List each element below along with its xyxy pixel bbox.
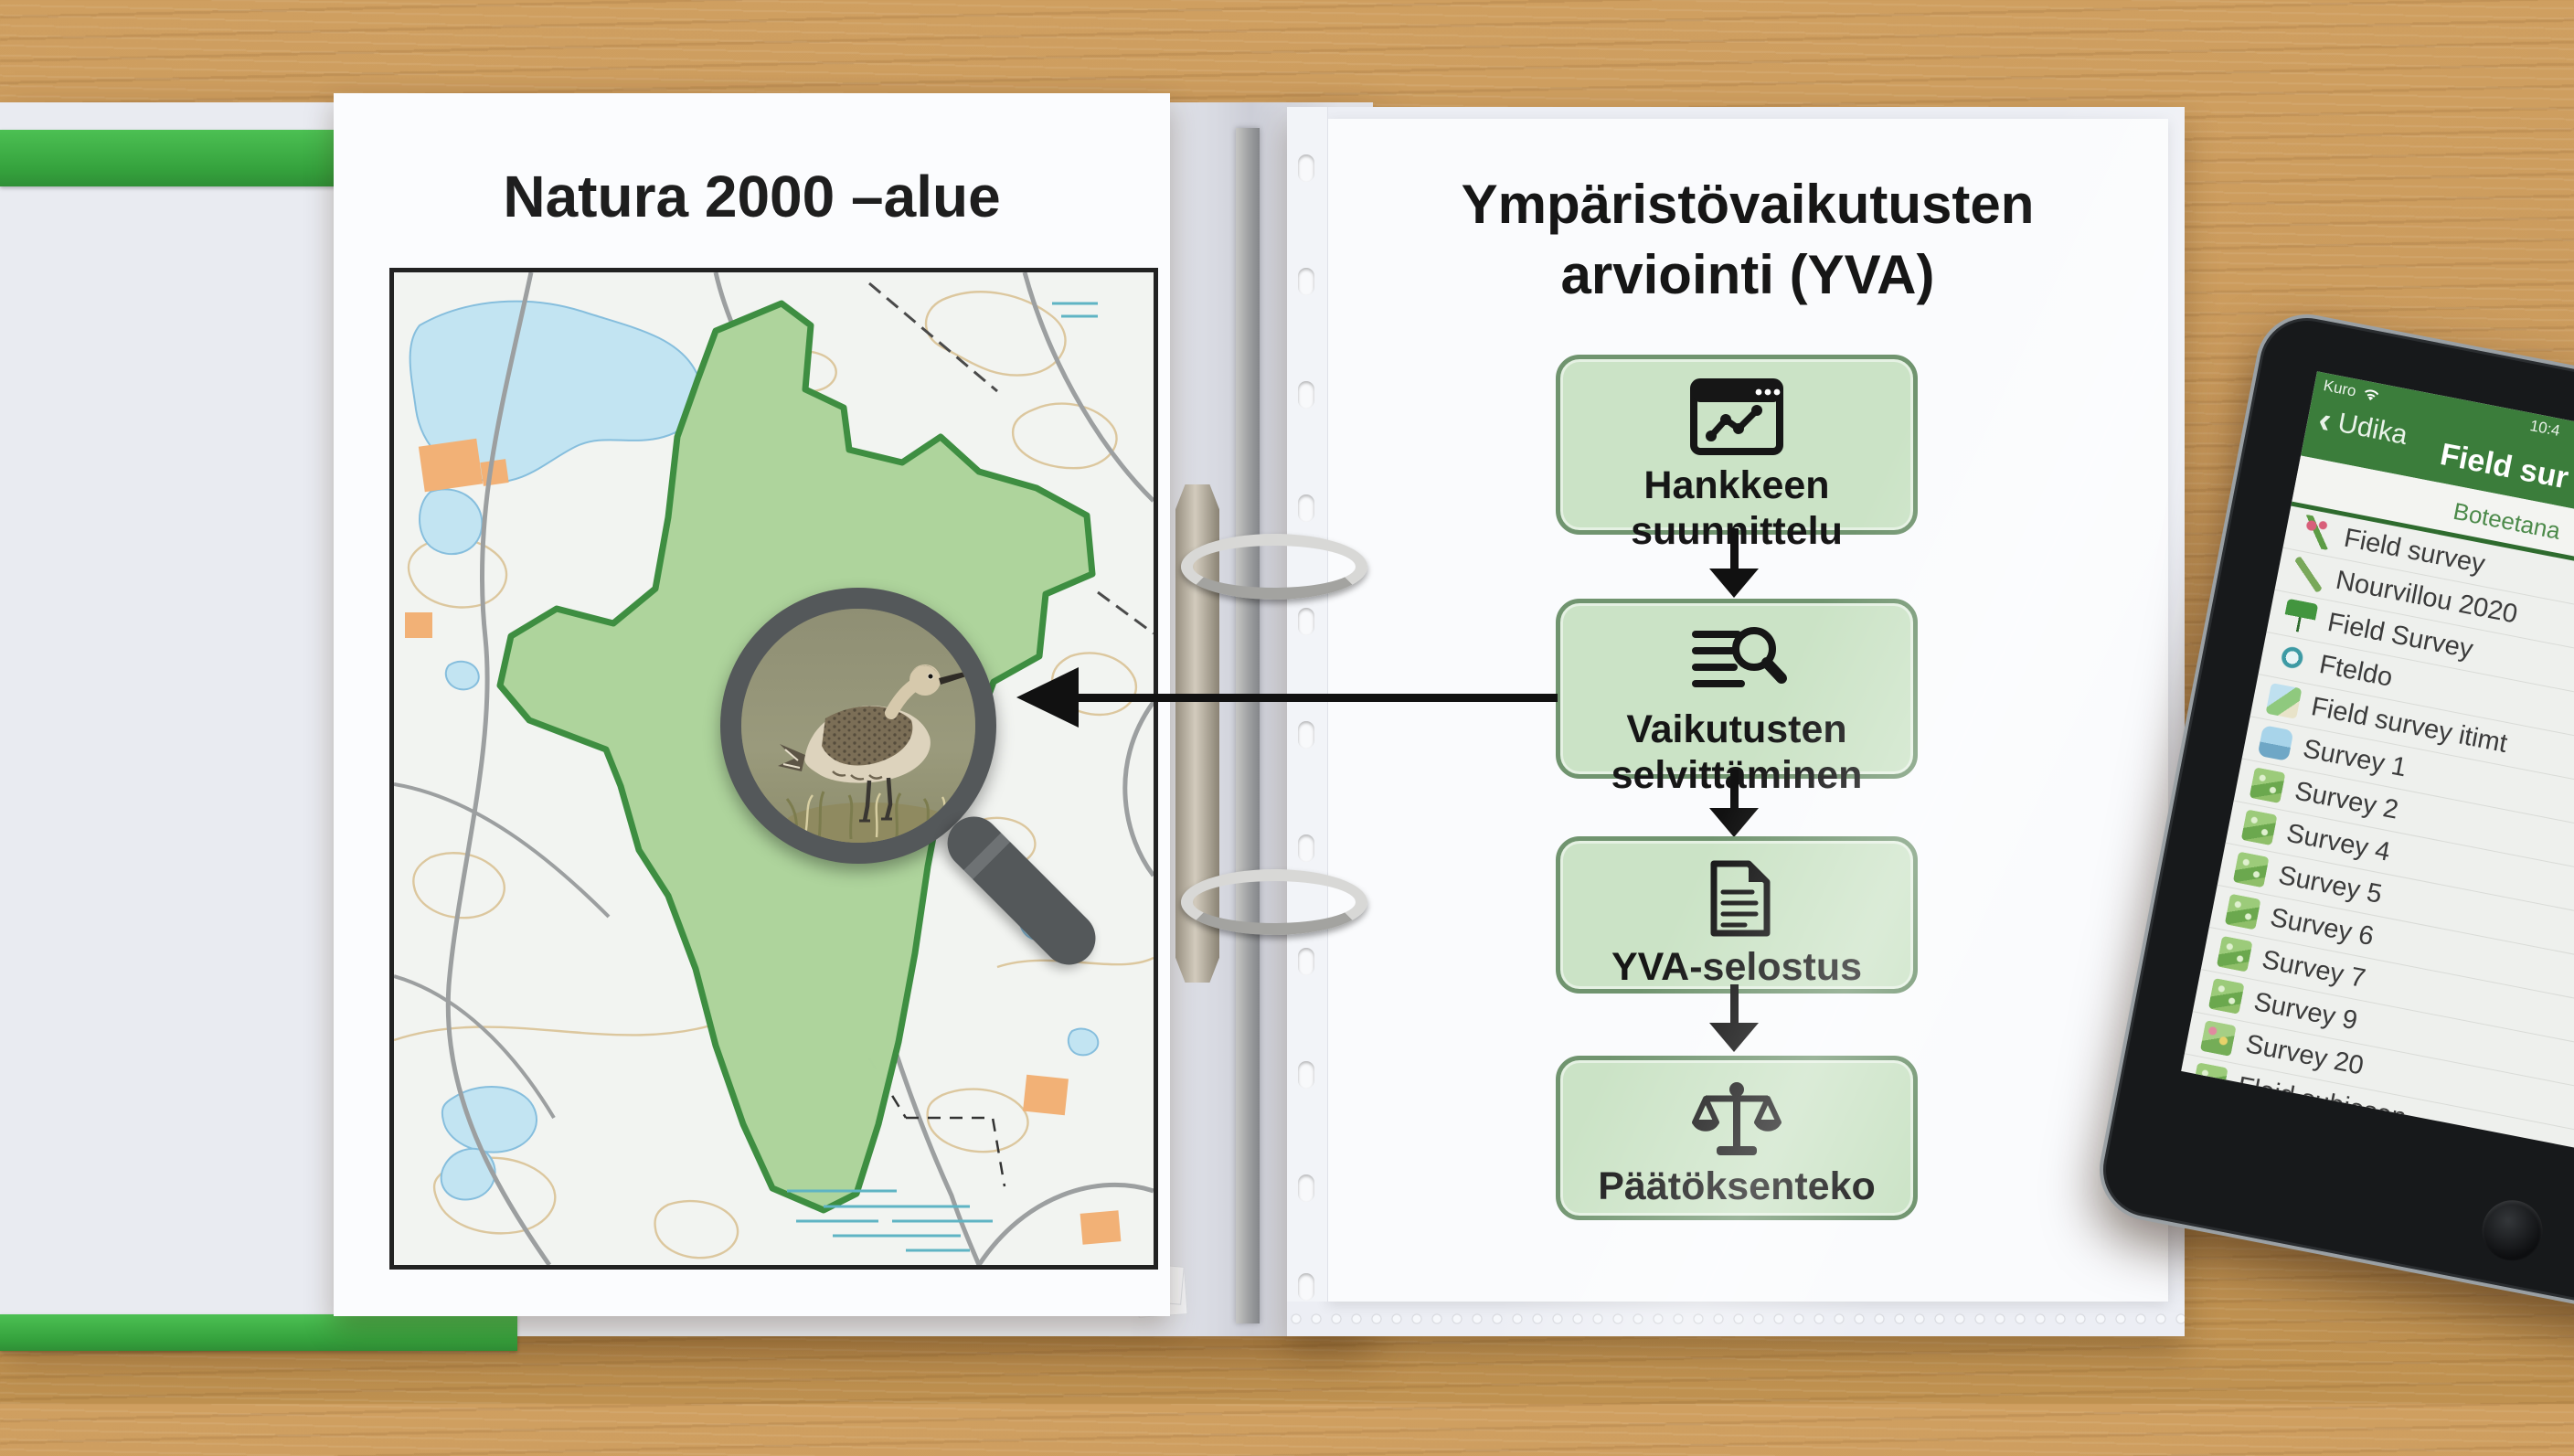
list-item-icon — [2266, 683, 2303, 719]
photo-scene: { "colors": { "binder_green": "#3fae46",… — [0, 0, 2574, 1404]
back-label: Udika — [2335, 408, 2410, 452]
list-item-icon — [2258, 725, 2294, 761]
list-item-icon — [2290, 557, 2326, 593]
clock: 10:4 — [2528, 417, 2561, 441]
sleeve-seam — [1287, 1302, 2185, 1336]
sleeve-hole-strip — [1287, 107, 1328, 1302]
list-item-icon — [2208, 978, 2245, 1015]
flow-step-assessment: Vaikutusten selvittäminen — [1556, 599, 1918, 779]
connector-arrow-line — [1077, 694, 1558, 702]
binder-spine-rail — [1236, 128, 1260, 1323]
search-list-icon — [1560, 622, 1913, 702]
list-item-label: Fteldo — [2317, 649, 2395, 693]
flow-step-label: Päätöksenteko — [1560, 1164, 1913, 1227]
binder-cover-edge-bottom — [0, 1314, 517, 1351]
flow-arrowhead — [1709, 1023, 1759, 1052]
flow-arrowhead — [1709, 808, 1759, 837]
list-item-icon — [2200, 1020, 2237, 1057]
flow-arrowhead — [1709, 569, 1759, 598]
bird-photo — [741, 609, 975, 843]
flow-step-planning: Hankkeen suunnittelu — [1556, 355, 1918, 535]
flow-step-decision: Päätöksenteko — [1556, 1056, 1918, 1220]
list-item-icon — [2298, 514, 2335, 550]
list-item-icon — [2274, 641, 2311, 677]
chevron-left-icon: ‹ — [2316, 406, 2334, 435]
wifi-icon — [2360, 386, 2383, 404]
flow-arrow — [1730, 984, 1739, 1025]
binder-ring-top — [1181, 534, 1367, 600]
magnifier — [720, 588, 996, 864]
survey-list: Field survey Nourvillou 2020 Field Surve… — [2181, 505, 2574, 1303]
flow-arrow — [1730, 528, 1739, 570]
scales-icon — [1560, 1079, 1913, 1159]
connector-arrowhead — [1016, 667, 1079, 728]
tablet-screen: Kuro 10:4 ‹ Udika Field sur Boteetana — [2181, 371, 2574, 1304]
flow-step-report: YVA-selostus — [1556, 836, 1918, 994]
document-icon — [1560, 859, 1913, 940]
home-button[interactable] — [2477, 1196, 2547, 1266]
map-title: Natura 2000 –alue — [334, 163, 1170, 230]
list-item-icon — [2250, 767, 2286, 803]
list-item-icon — [2282, 599, 2319, 635]
list-item-icon — [2241, 809, 2278, 845]
flow-title: Ympäristövaikutusten arviointi (YVA) — [1327, 170, 2168, 311]
carrier-label: Kuro — [2322, 377, 2357, 400]
chart-window-icon — [1560, 377, 1913, 458]
back-button[interactable]: ‹ Udika — [2316, 404, 2410, 452]
list-item-icon — [2233, 852, 2270, 888]
list-item-icon — [2225, 894, 2261, 930]
list-item-icon — [2192, 1062, 2228, 1099]
list-item-icon — [2217, 936, 2253, 972]
flow-arrow — [1730, 770, 1739, 810]
binder-ring-bottom — [1181, 869, 1367, 935]
